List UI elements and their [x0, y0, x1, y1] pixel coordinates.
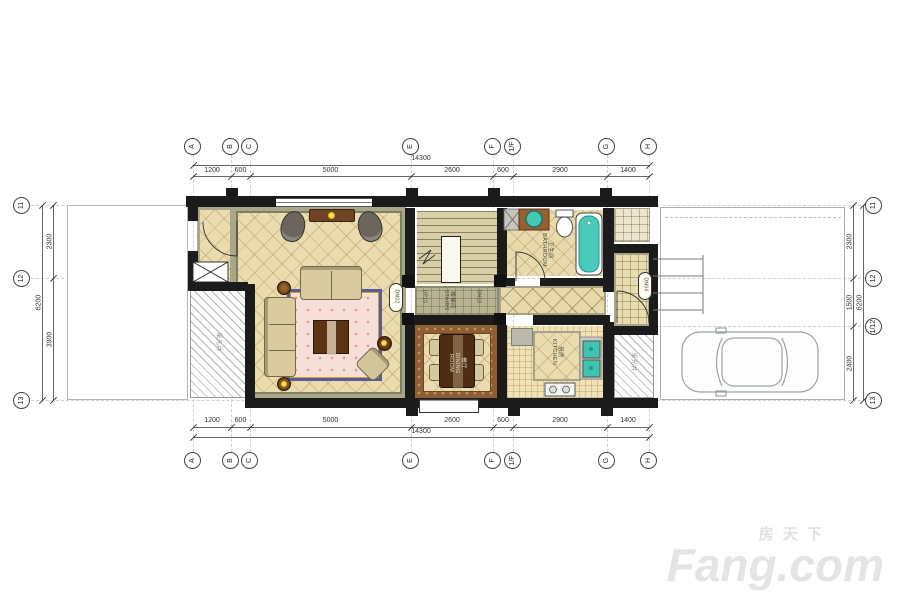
table-lamp	[381, 340, 387, 346]
sink-basin	[526, 211, 542, 227]
watermark-logo: Fang.com	[667, 538, 884, 592]
stairs-up-label: UP10	[422, 285, 427, 309]
lightwell-left-label: 采光井	[215, 322, 221, 362]
shower-pad	[504, 209, 521, 230]
stairs-dn-label: DN12	[476, 285, 481, 309]
passage-code-label: DN02	[394, 285, 399, 309]
bathtub	[576, 213, 602, 275]
floorplan-canvas: 14300 1200 600 5000 2600 600 2900 1400 1…	[0, 0, 900, 600]
stairs-label: 楼梯间 STAIRS	[443, 282, 455, 318]
watermark: 房天下 Fang.com	[667, 523, 884, 592]
stairs-break-arrow	[419, 250, 435, 264]
foyer-closet	[193, 262, 228, 282]
table-lamp	[328, 212, 335, 219]
table-lamp	[281, 381, 287, 387]
bathroom-label: 卫生间 BATHROOM	[541, 230, 553, 270]
bathroom-vanity	[519, 209, 549, 230]
stove-cooktop	[545, 383, 575, 396]
entry-code-label: DN04	[643, 273, 648, 297]
kitchen-label: 厨房 KITCHEN	[551, 332, 563, 372]
entry-door	[203, 221, 237, 256]
exterior-stairs	[653, 255, 703, 314]
lightwell-right-label: 采光井	[630, 342, 636, 382]
kitchen-sink-unit	[580, 337, 602, 379]
dining-label: 餐厅 DINING ROOM	[448, 343, 466, 383]
toilet	[556, 210, 573, 237]
car-top-view	[682, 328, 818, 396]
